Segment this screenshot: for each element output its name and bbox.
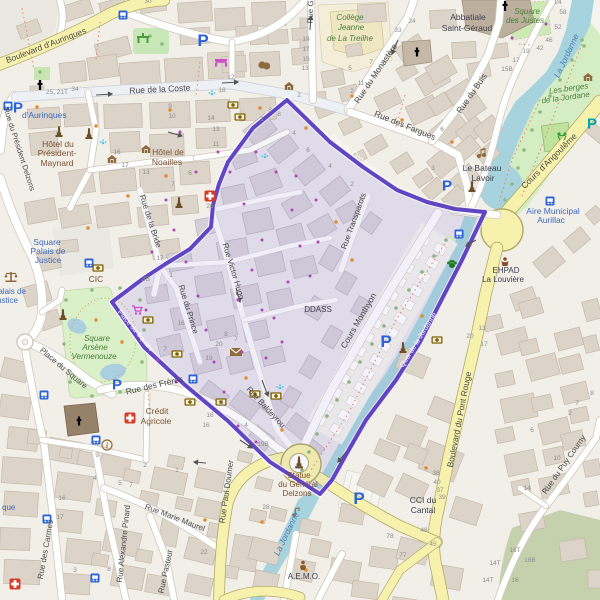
svg-text:10: 10 bbox=[553, 455, 561, 462]
svg-text:22: 22 bbox=[200, 549, 208, 556]
svg-text:16: 16 bbox=[206, 412, 214, 419]
svg-text:14: 14 bbox=[523, 485, 531, 492]
svg-text:2: 2 bbox=[297, 92, 301, 99]
svg-text:Rue G: Rue G bbox=[306, 0, 316, 23]
svg-text:16: 16 bbox=[202, 422, 210, 429]
svg-text:7: 7 bbox=[369, 59, 373, 66]
svg-text:25, 21T: 25, 21T bbox=[46, 89, 68, 96]
svg-text:P: P bbox=[442, 177, 452, 194]
svg-text:du Général: du Général bbox=[278, 480, 318, 489]
svg-text:39: 39 bbox=[438, 494, 446, 501]
svg-text:Square: Square bbox=[84, 334, 110, 343]
svg-text:6: 6 bbox=[188, 170, 192, 177]
svg-text:5: 5 bbox=[348, 65, 352, 72]
svg-text:La Louvière: La Louvière bbox=[482, 275, 524, 284]
svg-text:Aurillac: Aurillac bbox=[537, 215, 566, 225]
svg-text:19: 19 bbox=[205, 355, 213, 362]
svg-text:7: 7 bbox=[163, 346, 167, 353]
svg-text:16: 16 bbox=[113, 149, 121, 156]
svg-text:4: 4 bbox=[292, 130, 296, 137]
svg-text:de La Treilhe: de La Treilhe bbox=[327, 34, 374, 43]
svg-text:19: 19 bbox=[522, 48, 530, 55]
svg-text:16: 16 bbox=[511, 577, 519, 584]
svg-text:Justice: Justice bbox=[0, 296, 18, 305]
svg-text:P: P bbox=[112, 376, 122, 393]
svg-text:4: 4 bbox=[93, 475, 97, 482]
svg-text:30: 30 bbox=[144, 0, 152, 5]
svg-text:Palais de: Palais de bbox=[0, 287, 26, 296]
svg-text:3: 3 bbox=[73, 567, 77, 574]
svg-text:Cantal: Cantal bbox=[411, 505, 436, 515]
svg-text:10: 10 bbox=[168, 113, 176, 120]
svg-text:7: 7 bbox=[129, 482, 133, 489]
svg-text:28: 28 bbox=[262, 504, 270, 511]
svg-text:17: 17 bbox=[302, 46, 310, 53]
svg-text:12: 12 bbox=[227, 74, 235, 81]
svg-text:EHPAD: EHPAD bbox=[493, 266, 520, 275]
svg-text:Arsène: Arsène bbox=[81, 343, 108, 352]
svg-text:que: que bbox=[2, 503, 16, 512]
svg-text:Justice: Justice bbox=[35, 255, 62, 265]
svg-text:Collège: Collège bbox=[336, 13, 364, 22]
svg-text:7: 7 bbox=[575, 400, 579, 407]
svg-text:17: 17 bbox=[121, 162, 129, 169]
svg-text:13: 13 bbox=[212, 126, 220, 133]
svg-text:Agricole: Agricole bbox=[141, 416, 172, 426]
svg-text:77: 77 bbox=[399, 552, 407, 559]
svg-text:7: 7 bbox=[234, 336, 238, 343]
svg-text:Président-: Président- bbox=[38, 148, 77, 158]
svg-text:38: 38 bbox=[432, 470, 440, 477]
svg-text:17: 17 bbox=[156, 255, 164, 262]
svg-text:14: 14 bbox=[207, 115, 215, 122]
svg-text:8: 8 bbox=[224, 331, 228, 338]
svg-text:16: 16 bbox=[177, 320, 185, 327]
svg-text:Abbatiale: Abbatiale bbox=[450, 12, 486, 22]
svg-text:15: 15 bbox=[302, 56, 310, 63]
svg-text:46: 46 bbox=[545, 37, 553, 44]
svg-text:Statue: Statue bbox=[287, 471, 311, 480]
svg-text:Jeanne: Jeanne bbox=[337, 23, 365, 32]
svg-text:26: 26 bbox=[206, 203, 214, 210]
svg-text:58: 58 bbox=[559, 9, 567, 16]
svg-text:6: 6 bbox=[530, 427, 534, 434]
svg-text:11: 11 bbox=[218, 400, 225, 407]
svg-text:16B: 16B bbox=[524, 557, 536, 564]
svg-text:20: 20 bbox=[466, 333, 474, 340]
svg-text:2: 2 bbox=[350, 181, 354, 188]
svg-text:Saint-Géraud: Saint-Géraud bbox=[442, 23, 493, 33]
svg-text:7: 7 bbox=[171, 181, 175, 188]
svg-text:Crédit: Crédit bbox=[146, 406, 169, 416]
svg-text:1: 1 bbox=[260, 116, 264, 123]
svg-text:19: 19 bbox=[302, 36, 310, 43]
svg-text:Maynard: Maynard bbox=[40, 158, 73, 168]
svg-text:9: 9 bbox=[168, 103, 172, 110]
svg-text:12: 12 bbox=[543, 485, 551, 492]
svg-text:14T: 14T bbox=[489, 560, 500, 567]
svg-text:5: 5 bbox=[118, 480, 122, 487]
svg-text:16T: 16T bbox=[509, 547, 520, 554]
svg-text:A.E.M.O.: A.E.M.O. bbox=[288, 572, 320, 581]
svg-text:9: 9 bbox=[95, 452, 99, 459]
svg-text:13: 13 bbox=[142, 169, 150, 176]
svg-text:DDASS: DDASS bbox=[304, 305, 332, 314]
svg-text:17: 17 bbox=[56, 514, 64, 521]
svg-text:16: 16 bbox=[58, 495, 66, 502]
svg-text:2: 2 bbox=[143, 462, 147, 469]
svg-text:Square: Square bbox=[514, 7, 540, 16]
svg-text:6: 6 bbox=[306, 147, 310, 154]
svg-text:des Justes: des Justes bbox=[506, 16, 544, 25]
svg-text:17: 17 bbox=[480, 341, 488, 348]
svg-text:48: 48 bbox=[420, 527, 428, 534]
svg-text:13: 13 bbox=[478, 325, 486, 332]
svg-text:4: 4 bbox=[244, 422, 248, 429]
svg-text:Lavoir: Lavoir bbox=[471, 173, 494, 183]
svg-text:11: 11 bbox=[213, 141, 220, 148]
svg-text:18: 18 bbox=[218, 87, 226, 94]
svg-text:8: 8 bbox=[107, 566, 111, 573]
svg-text:1: 1 bbox=[175, 467, 179, 474]
svg-text:6: 6 bbox=[440, 126, 444, 133]
svg-text:19B: 19B bbox=[257, 441, 269, 448]
svg-text:78: 78 bbox=[386, 533, 394, 540]
svg-text:1: 1 bbox=[169, 272, 173, 279]
svg-text:11: 11 bbox=[358, 80, 365, 87]
svg-text:20: 20 bbox=[215, 341, 223, 348]
svg-text:Hôtel de: Hôtel de bbox=[152, 147, 184, 157]
svg-text:4: 4 bbox=[328, 163, 332, 170]
svg-text:40: 40 bbox=[433, 479, 441, 486]
svg-text:13: 13 bbox=[301, 65, 309, 72]
svg-text:P: P bbox=[353, 489, 364, 508]
svg-text:8: 8 bbox=[590, 390, 594, 397]
svg-text:P: P bbox=[380, 332, 391, 351]
svg-text:42: 42 bbox=[536, 45, 544, 52]
svg-text:2: 2 bbox=[568, 410, 572, 417]
svg-text:d'Aurinques: d'Aurinques bbox=[22, 110, 67, 120]
svg-text:3B: 3B bbox=[142, 276, 150, 283]
svg-text:CCI du: CCI du bbox=[410, 495, 437, 505]
svg-text:Vermenouze: Vermenouze bbox=[71, 352, 117, 361]
svg-text:Le Bateau: Le Bateau bbox=[463, 163, 502, 173]
svg-text:24: 24 bbox=[408, 18, 416, 25]
svg-text:33: 33 bbox=[394, 27, 402, 34]
svg-text:17: 17 bbox=[512, 57, 520, 64]
svg-text:15B: 15B bbox=[501, 66, 513, 73]
svg-text:CIC: CIC bbox=[89, 274, 104, 284]
svg-text:P: P bbox=[587, 115, 597, 132]
svg-text:2: 2 bbox=[350, 88, 354, 95]
svg-text:Noailles: Noailles bbox=[152, 157, 182, 167]
svg-text:P: P bbox=[197, 31, 208, 50]
svg-text:37: 37 bbox=[436, 487, 444, 494]
svg-text:8: 8 bbox=[277, 111, 281, 118]
svg-text:34: 34 bbox=[71, 86, 79, 93]
svg-text:14T: 14T bbox=[482, 577, 493, 584]
svg-text:3: 3 bbox=[431, 165, 435, 172]
svg-text:3: 3 bbox=[268, 107, 272, 114]
svg-text:52: 52 bbox=[554, 24, 562, 31]
svg-text:45: 45 bbox=[429, 541, 437, 548]
svg-text:Delzons: Delzons bbox=[283, 489, 312, 498]
svg-text:24: 24 bbox=[554, 0, 562, 6]
